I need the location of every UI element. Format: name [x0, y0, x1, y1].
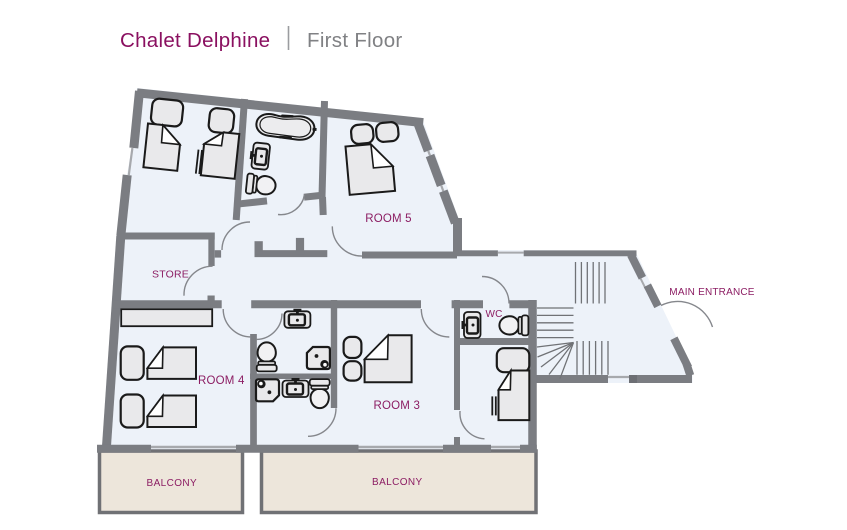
svg-text:ROOM 5: ROOM 5	[365, 213, 412, 225]
svg-text:ROOM 3: ROOM 3	[374, 400, 421, 412]
svg-text:BALCONY: BALCONY	[147, 478, 198, 489]
svg-text:WC: WC	[485, 309, 502, 320]
svg-text:ROOM 4: ROOM 4	[198, 375, 245, 387]
svg-text:Chalet Delphine: Chalet Delphine	[120, 29, 270, 52]
svg-text:First Floor: First Floor	[307, 29, 403, 52]
svg-text:STORE: STORE	[152, 269, 189, 281]
svg-text:BALCONY: BALCONY	[372, 477, 423, 488]
svg-text:MAIN ENTRANCE: MAIN ENTRANCE	[669, 287, 755, 298]
